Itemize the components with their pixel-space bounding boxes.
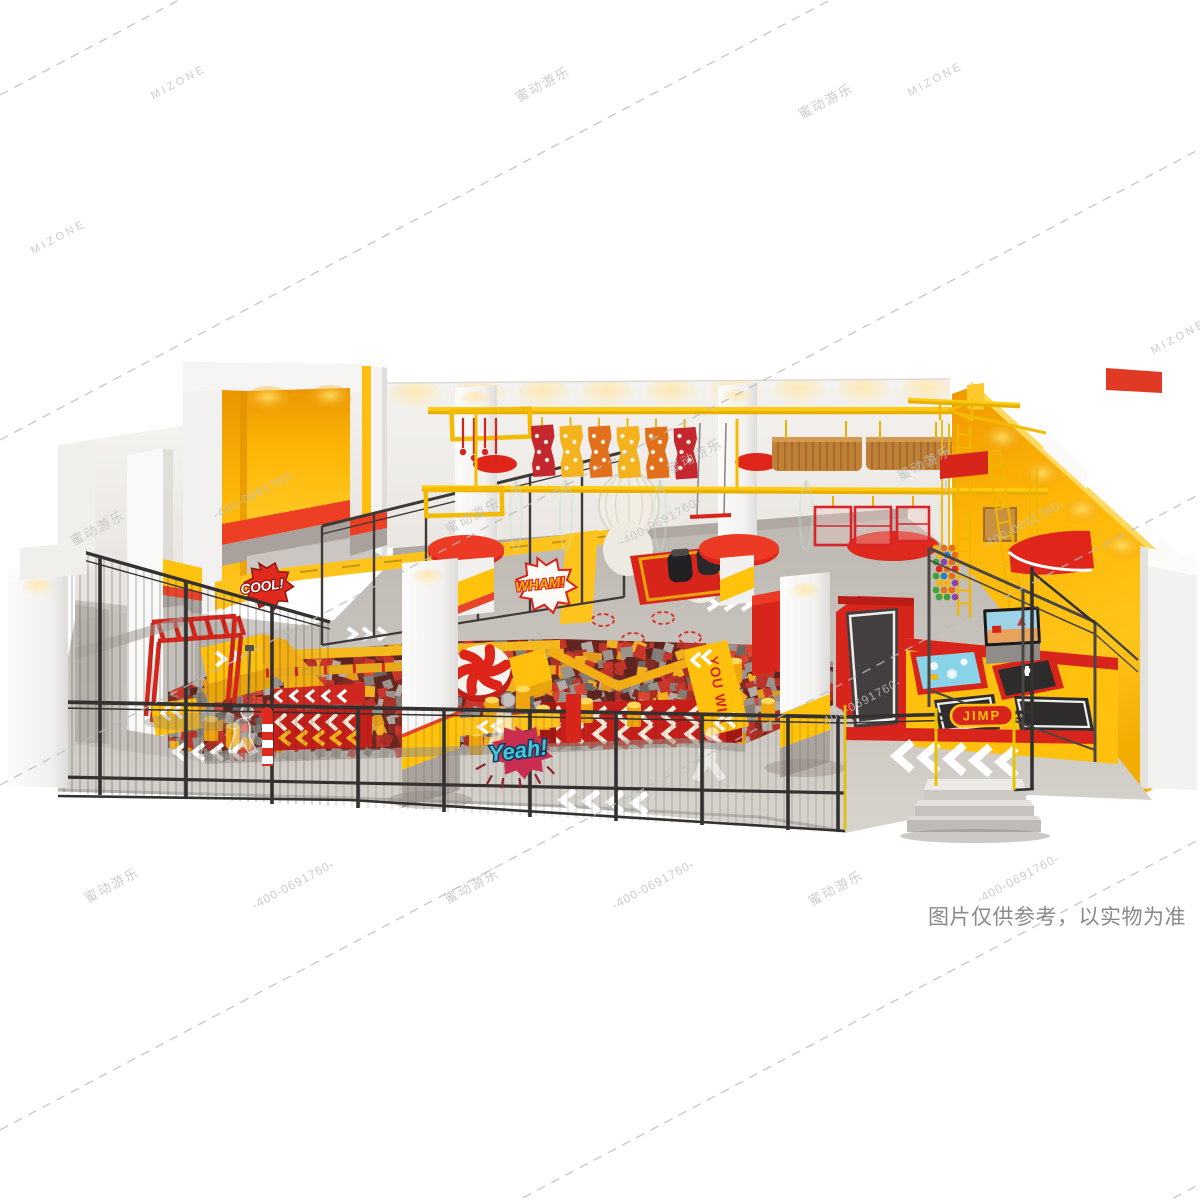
svg-text:图片仅供参考，以实物为准: 图片仅供参考，以实物为准 <box>928 906 1186 929</box>
svg-text:JIMP: JIMP <box>963 708 1002 724</box>
